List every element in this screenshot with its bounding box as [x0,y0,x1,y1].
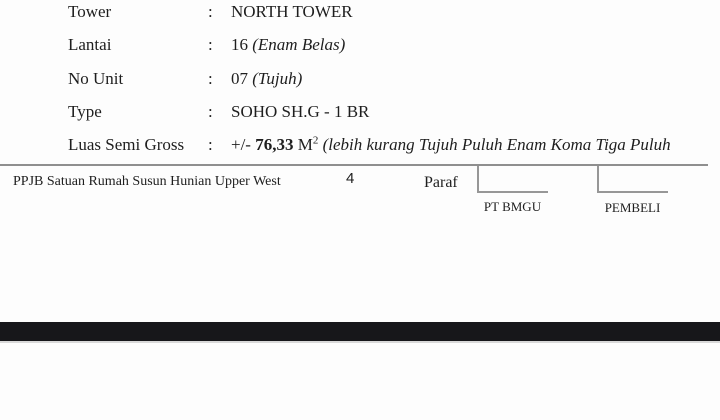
detail-colon: : [208,134,213,156]
signatory-label-pt-bmgu: PT BMGU [477,199,548,215]
paraf-box-pembeli [597,166,668,193]
signatory-label-pembeli: PEMBELI [597,200,668,216]
value-number: 16 [231,35,252,54]
bottom-black-bar [0,322,720,343]
detail-label: Tower [68,1,111,23]
detail-value: SOHO SH.G - 1 BR [231,101,369,123]
value-unit: M [293,135,312,154]
value-prefix: +/- [231,135,255,154]
detail-colon: : [208,34,213,56]
detail-label: Luas Semi Gross [68,134,184,156]
value-spelled-out: (lebih kurang Tujuh Puluh Enam Koma Tiga… [318,135,670,154]
detail-value: 07 (Tujuh) [231,68,302,90]
value-number: 07 [231,69,252,88]
detail-row-no-unit: No Unit : 07 (Tujuh) [0,68,720,92]
detail-colon: : [208,101,213,123]
detail-value: 16 (Enam Belas) [231,34,345,56]
footer-doc-title: PPJB Satuan Rumah Susun Hunian Upper Wes… [13,174,281,190]
detail-value: NORTH TOWER [231,1,353,23]
detail-label: Type [68,101,102,123]
paraf-label: Paraf [424,174,458,192]
value-spelled-out: (Enam Belas) [252,35,345,54]
paraf-box-pt-bmgu [477,166,548,193]
detail-row-lantai: Lantai : 16 (Enam Belas) [0,34,720,58]
detail-row-tower: Tower : NORTH TOWER [0,1,720,25]
detail-label: No Unit [68,68,123,90]
value-spelled-out: (Tujuh) [252,69,302,88]
page-number: 4 [346,170,354,187]
value-area-number: 76,33 [255,135,293,154]
detail-colon: : [208,1,213,23]
detail-colon: : [208,68,213,90]
document-page: Tower : NORTH TOWER Lantai : 16 (Enam Be… [0,0,720,420]
detail-row-type: Type : SOHO SH.G - 1 BR [0,101,720,125]
detail-row-luas-semi-gross: Luas Semi Gross : +/- 76,33 M2 (lebih ku… [0,134,720,158]
detail-value: +/- 76,33 M2 (lebih kurang Tujuh Puluh E… [231,134,671,156]
detail-label: Lantai [68,34,111,56]
